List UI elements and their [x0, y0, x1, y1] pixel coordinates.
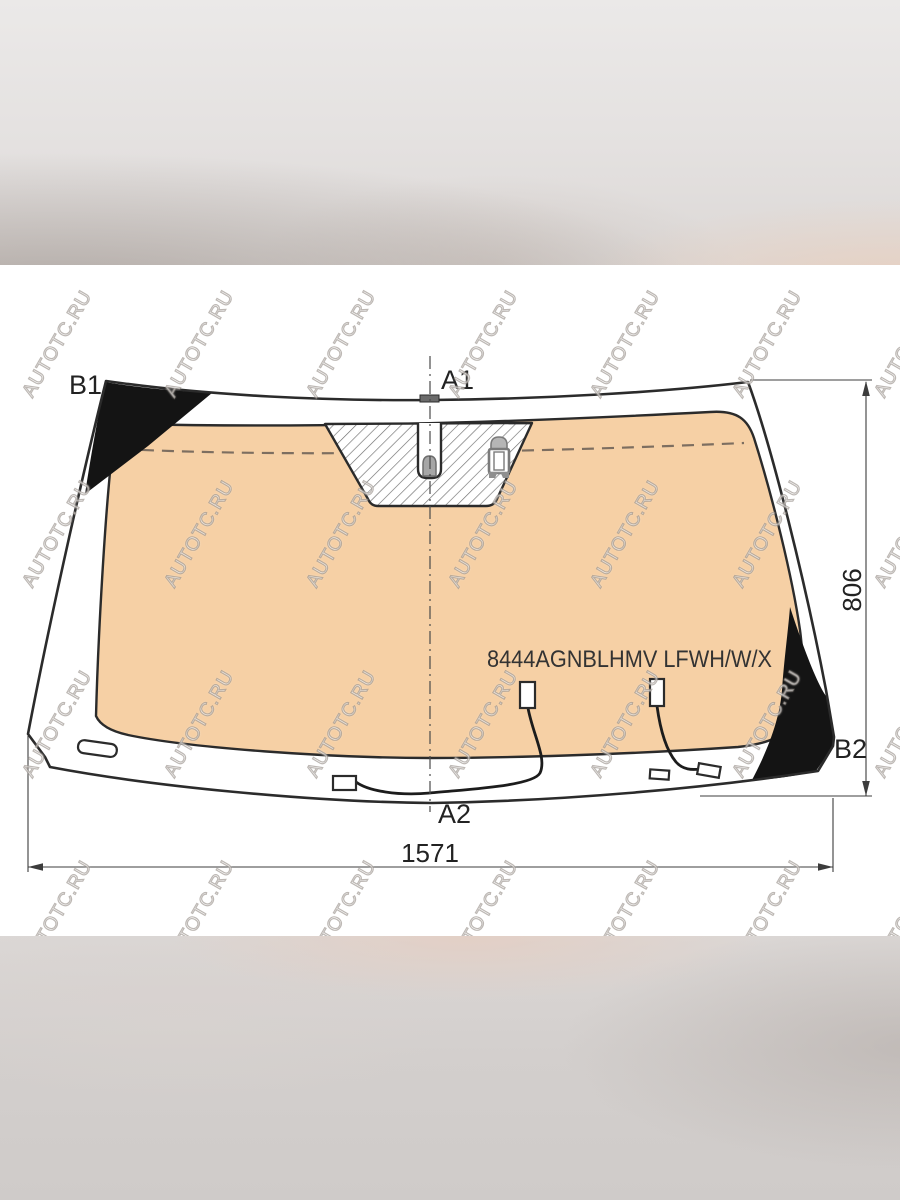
watermark-text: AUTOTC.RU — [728, 287, 807, 401]
watermark-text: AUTOTC.RU — [302, 477, 381, 591]
watermark-text: AUTOTC.RU — [160, 477, 239, 591]
watermark-text: AUTOTC.RU — [302, 287, 381, 401]
watermark-text: AUTOTC.RU — [870, 667, 900, 781]
watermark-text: AUTOTC.RU — [870, 857, 900, 936]
watermark-text: AUTOTC.RU — [160, 667, 239, 781]
watermark-text: AUTOTC.RU — [160, 287, 239, 401]
watermark-text: AUTOTC.RU — [444, 287, 523, 401]
watermark-text: AUTOTC.RU — [586, 477, 665, 591]
watermark-layer: AUTOTC.RUAUTOTC.RUAUTOTC.RUAUTOTC.RUAUTO… — [0, 265, 900, 936]
watermark-text: AUTOTC.RU — [728, 477, 807, 591]
watermark-text: AUTOTC.RU — [870, 477, 900, 591]
watermark-text: AUTOTC.RU — [302, 857, 381, 936]
watermark-text: AUTOTC.RU — [18, 667, 97, 781]
watermark-text: AUTOTC.RU — [586, 667, 665, 781]
watermark-text: AUTOTC.RU — [18, 857, 97, 936]
watermark-text: AUTOTC.RU — [870, 287, 900, 401]
watermark-text: AUTOTC.RU — [444, 667, 523, 781]
watermark-text: AUTOTC.RU — [302, 667, 381, 781]
screenshot-root: 806 1571 B1 A1 A2 B2 8444AGNBLHMV LFWH/W… — [0, 0, 900, 1200]
watermark-text: AUTOTC.RU — [18, 287, 97, 401]
watermark-text: AUTOTC.RU — [728, 857, 807, 936]
watermark-text: AUTOTC.RU — [444, 477, 523, 591]
watermark-text: AUTOTC.RU — [586, 857, 665, 936]
watermark-text: AUTOTC.RU — [18, 477, 97, 591]
watermark-text: AUTOTC.RU — [160, 857, 239, 936]
watermark-text: AUTOTC.RU — [586, 287, 665, 401]
watermark-text: AUTOTC.RU — [444, 857, 523, 936]
watermark-text: AUTOTC.RU — [728, 667, 807, 781]
